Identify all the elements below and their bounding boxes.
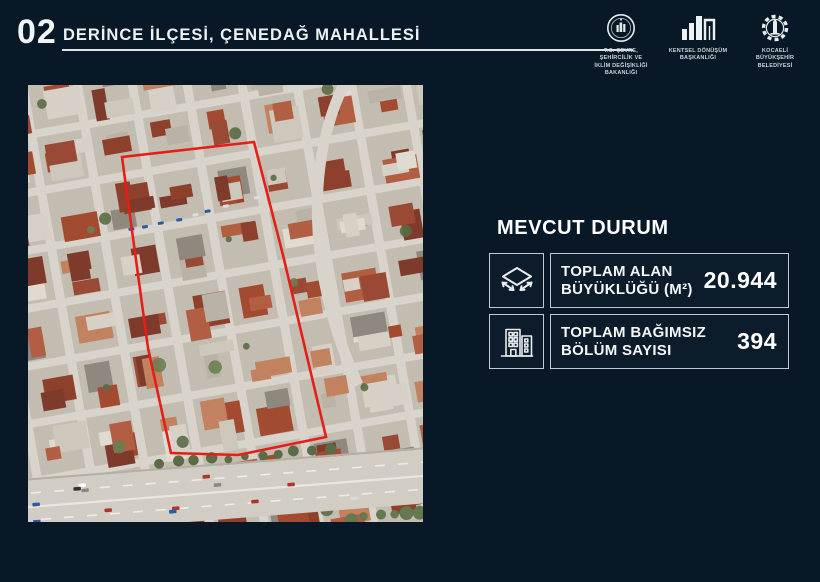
- stat-label: TOPLAM ALAN BÜYÜKLÜĞÜ (M²): [551, 263, 704, 298]
- building-icon: [489, 314, 544, 369]
- logo-strip: T.C. ÇEVRE, ŞEHİRCİLİK VE İKLİM DEĞİŞİKL…: [590, 11, 806, 78]
- satellite-map: [28, 85, 423, 522]
- area-icon: [489, 253, 544, 308]
- ministry-logo: T.C. ÇEVRE, ŞEHİRCİLİK VE İKLİM DEĞİŞİKL…: [590, 11, 652, 78]
- stat-body-unit-count: TOPLAM BAĞIMSIZ BÖLÜM SAYISI 394: [550, 314, 789, 369]
- stat-body-total-area: TOPLAM ALAN BÜYÜKLÜĞÜ (M²) 20.944: [550, 253, 789, 308]
- stat-value: 20.944: [704, 267, 788, 294]
- aerial-photo: [28, 85, 423, 522]
- ministry-logo-caption: T.C. ÇEVRE, ŞEHİRCİLİK VE İKLİM DEĞİŞİKL…: [590, 48, 652, 78]
- stat-value: 394: [737, 328, 788, 355]
- stat-card-unit-count: TOPLAM BAĞIMSIZ BÖLÜM SAYISI 394: [489, 314, 789, 369]
- page-title: DERİNCE İLÇESİ, ÇENEDAĞ MAHALLESİ: [63, 26, 421, 45]
- urban-transformation-icon: [678, 11, 718, 45]
- stat-label: TOPLAM BAĞIMSIZ BÖLÜM SAYISI: [551, 324, 737, 359]
- urban-transformation-logo-caption: KENTSEL DÖNÜŞÜM BAŞKANLIĞI: [669, 48, 728, 63]
- kocaeli-municipality-logo: KOCAELİ BÜYÜKŞEHİR BELEDİYESİ: [744, 11, 806, 70]
- urban-transformation-logo: KENTSEL DÖNÜŞÜM BAŞKANLIĞI: [667, 11, 729, 63]
- ministry-seal-icon: [604, 11, 638, 45]
- section-heading: MEVCUT DURUM: [497, 217, 669, 240]
- title-underline: [62, 49, 633, 51]
- stat-card-total-area: TOPLAM ALAN BÜYÜKLÜĞÜ (M²) 20.944: [489, 253, 789, 308]
- kocaeli-municipality-icon: [757, 11, 793, 45]
- kocaeli-municipality-logo-caption: KOCAELİ BÜYÜKŞEHİR BELEDİYESİ: [744, 48, 806, 70]
- slide: 02 DERİNCE İLÇESİ, ÇENEDAĞ MAHALLESİ T.C…: [0, 0, 820, 582]
- slide-number: 02: [17, 13, 57, 52]
